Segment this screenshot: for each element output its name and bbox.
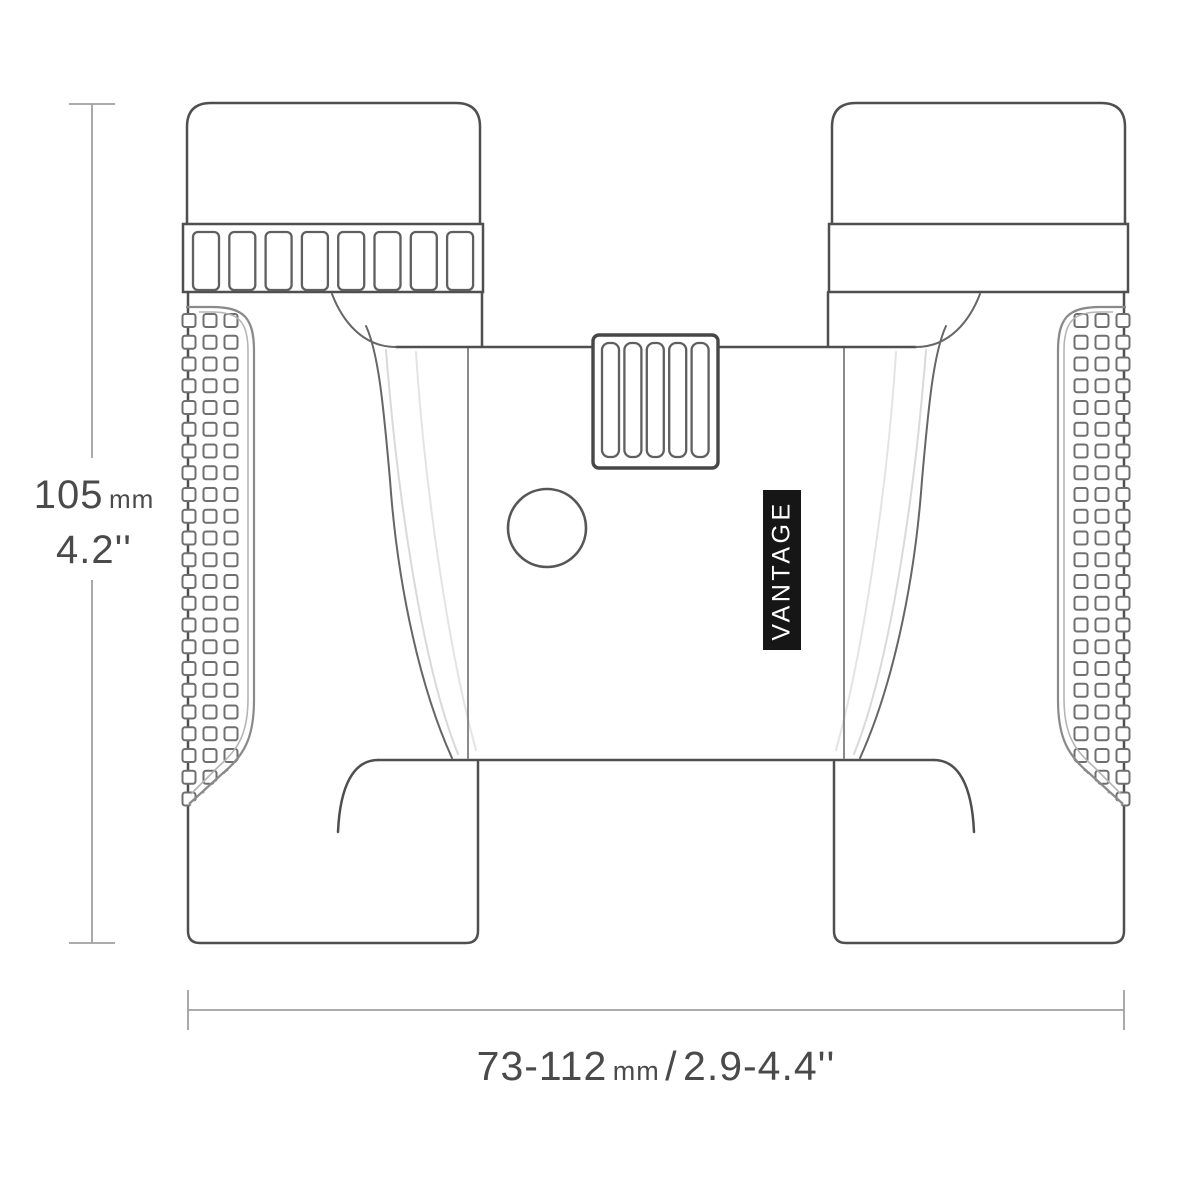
left-eyepiece — [183, 103, 483, 292]
left-grip-texture — [183, 307, 255, 806]
width-unit: mm — [613, 1056, 660, 1086]
brand-label: VANTAGE — [763, 490, 801, 650]
height-mm: 105 mm — [6, 472, 182, 527]
width-dimension-label: 73-112 mm / 2.9-4.4'' — [306, 1040, 1006, 1102]
width-separator: / — [665, 1043, 677, 1089]
diagram-canvas: VANTAGE 105 mm 4.2'' 73-112 mm / 2.9-4.4… — [0, 0, 1200, 1200]
binoculars-line-drawing — [0, 0, 1200, 1200]
focus-wheel — [593, 335, 718, 468]
brand-label-text: VANTAGE — [768, 500, 797, 640]
right-eyepiece — [829, 103, 1128, 292]
height-dimension-label: 105 mm 4.2'' — [6, 472, 182, 573]
width-dimension-line — [188, 990, 1124, 1030]
width-range: 73-112 — [477, 1043, 608, 1089]
height-inches: 4.2'' — [6, 527, 182, 573]
focus-wheel-ribs — [602, 343, 709, 457]
width-inches: 2.9-4.4'' — [683, 1043, 835, 1089]
right-grip-texture — [1058, 307, 1130, 806]
hinge-screw-circle — [508, 489, 586, 567]
